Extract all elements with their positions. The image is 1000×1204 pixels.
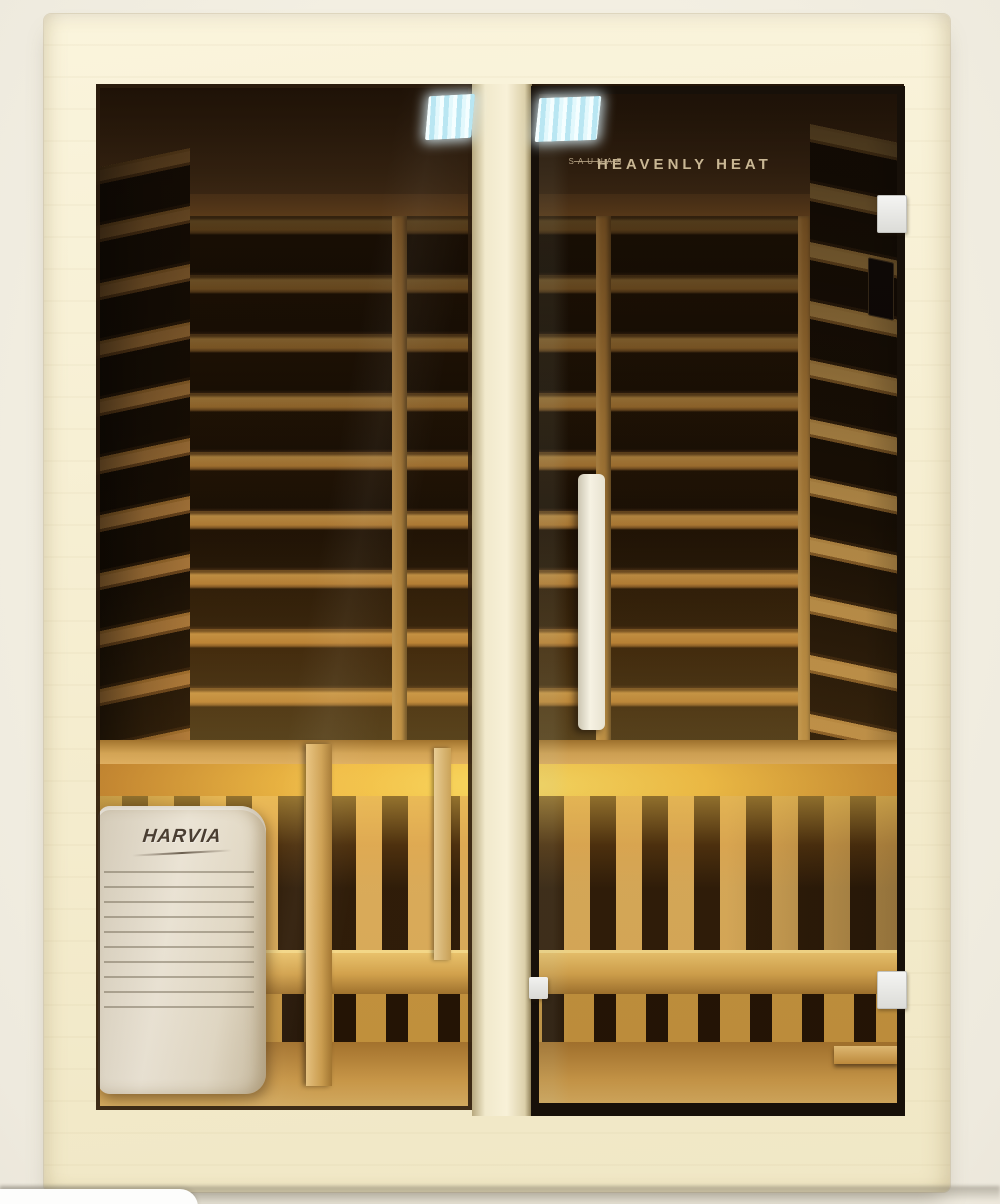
door-hinge-bottom [877, 971, 907, 1009]
door-hinge-top [877, 195, 907, 233]
logo-divider-right [574, 161, 620, 162]
door-latch [529, 977, 548, 999]
ceiling-light-right [535, 96, 602, 142]
center-mullion [472, 84, 532, 1116]
window-frame-rim [96, 84, 472, 1110]
product-photo: HARVIA HEAVENLY HEAT SAUNAS [0, 0, 1000, 1204]
ceiling-light-left [425, 94, 475, 140]
door-handle [578, 474, 605, 730]
bottom-left-overlay-card [0, 1189, 198, 1204]
